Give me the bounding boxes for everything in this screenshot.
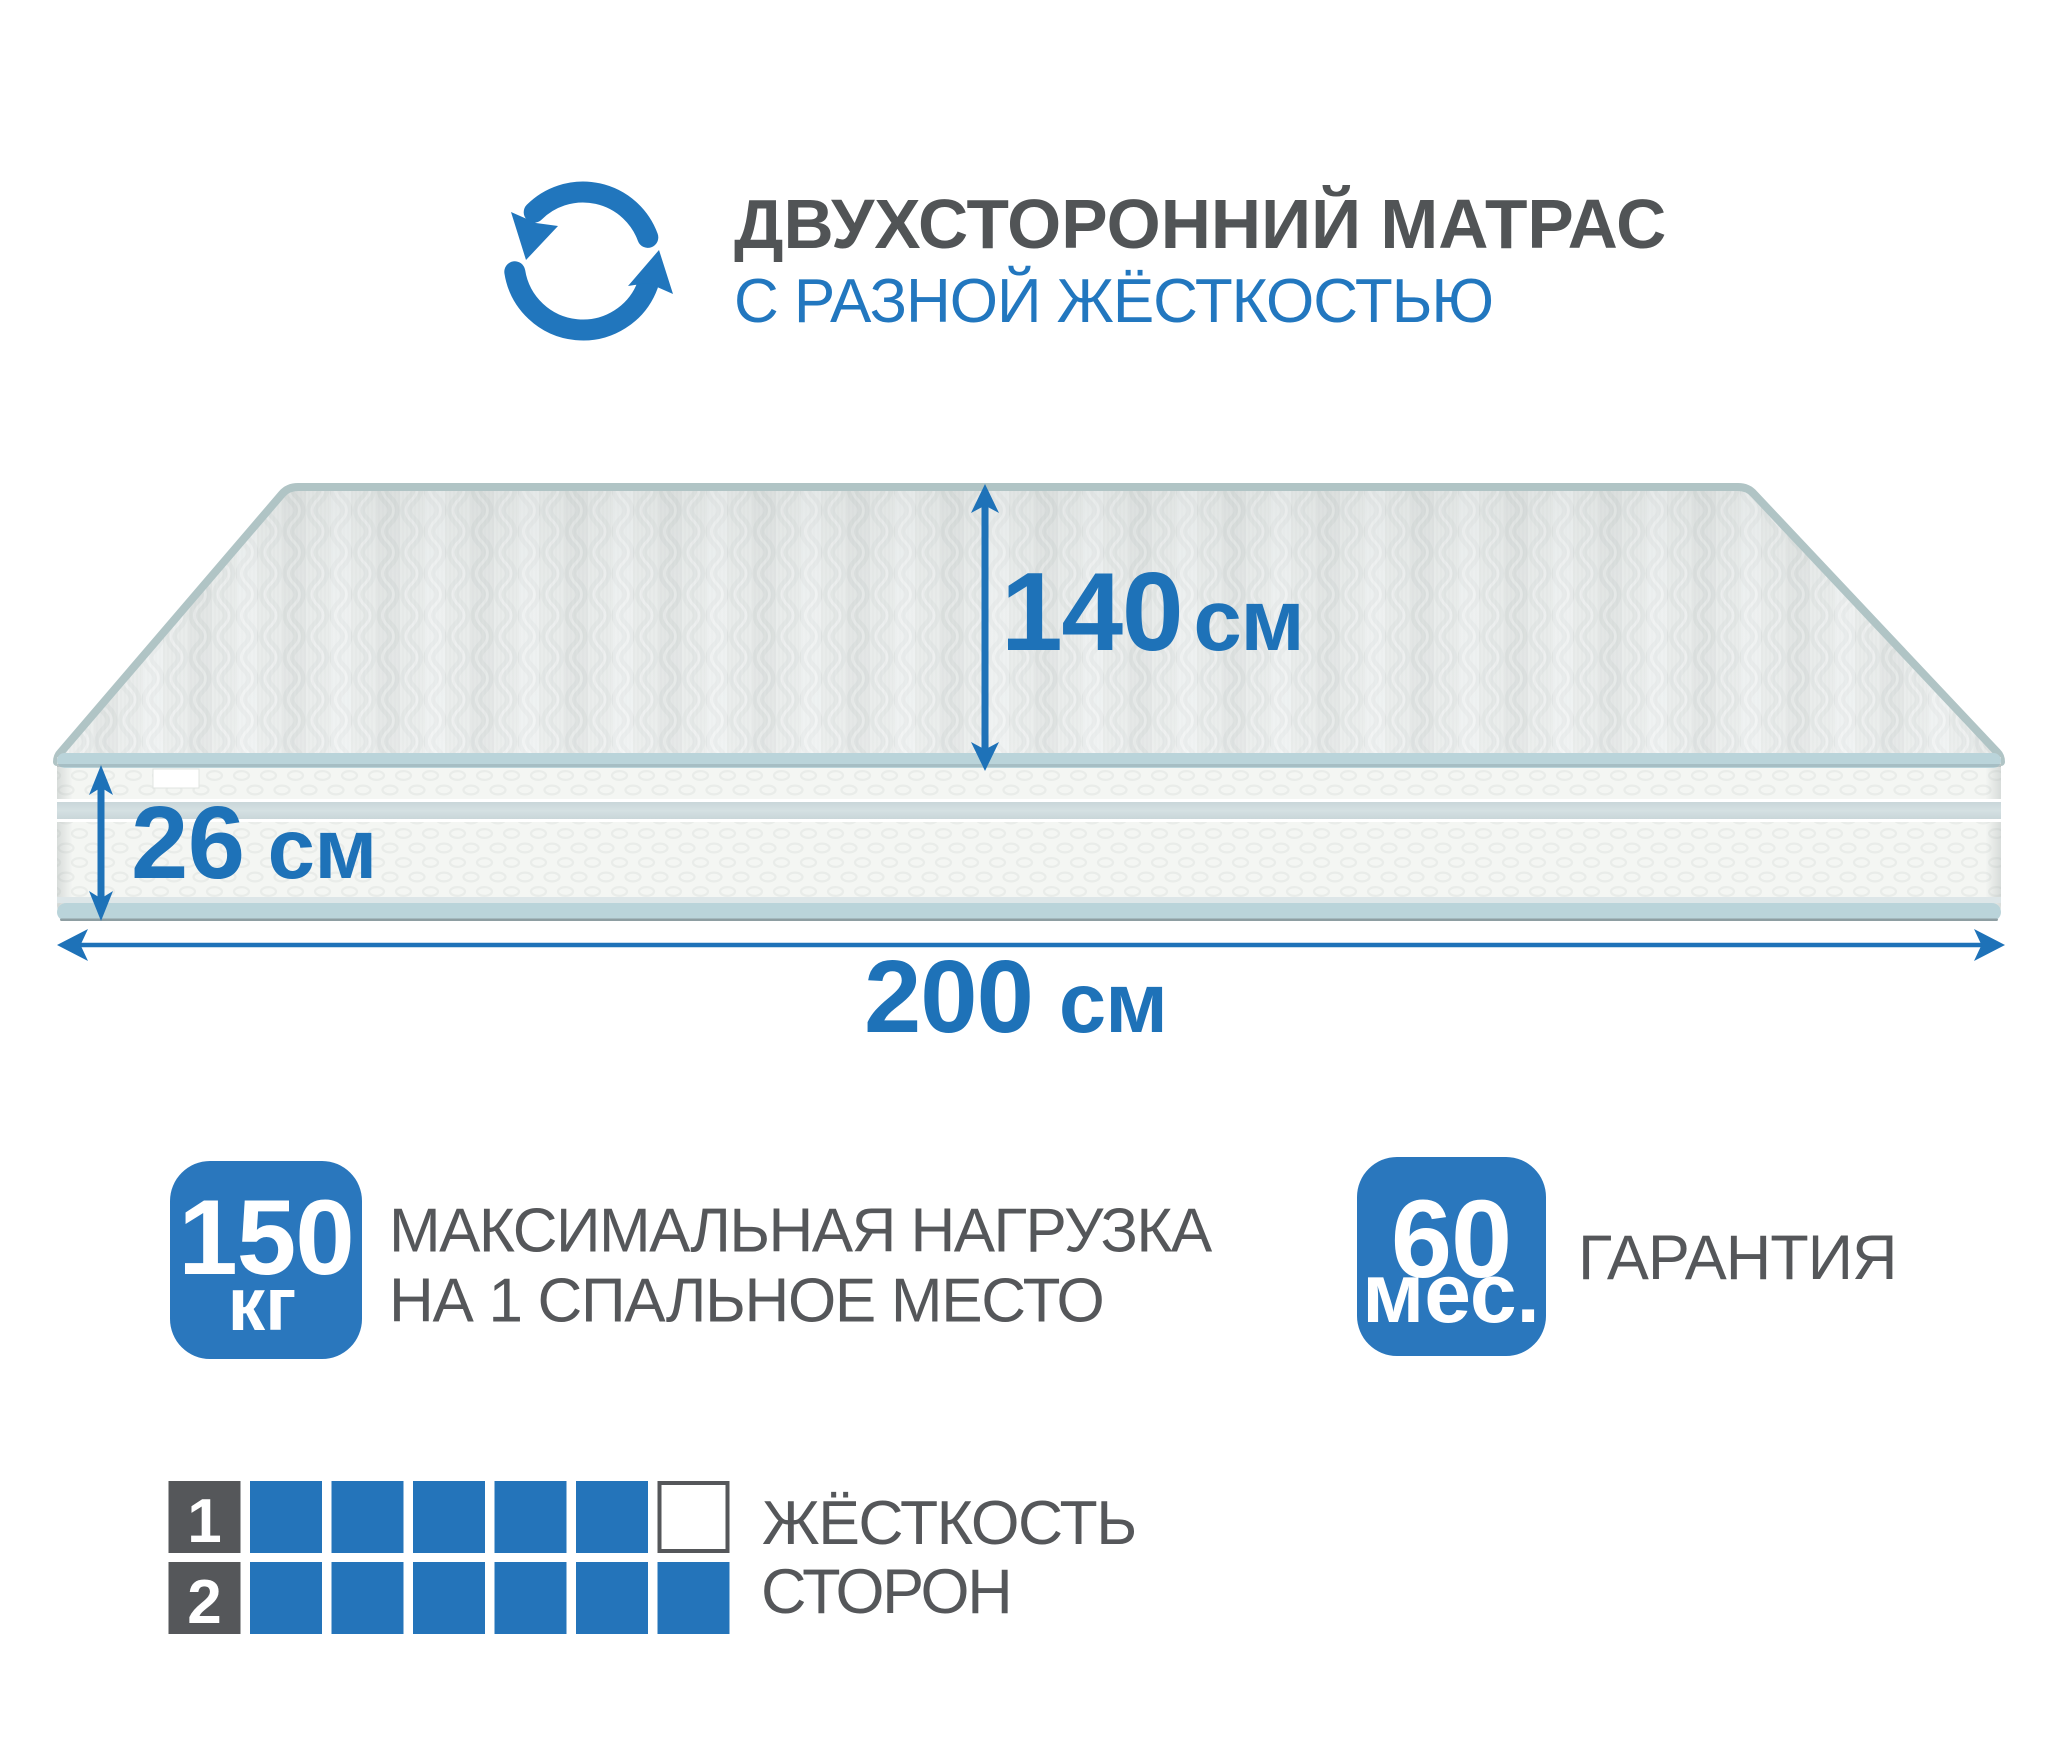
svg-text:С РАЗНОЙ ЖЁСТКОСТЬЮ: С РАЗНОЙ ЖЁСТКОСТЬЮ [734, 266, 1493, 336]
svg-text:ДВУХСТОРОННИЙ МАТРАС: ДВУХСТОРОННИЙ МАТРАС [734, 184, 1666, 263]
svg-text:СТОРОН: СТОРОН [761, 1557, 1010, 1627]
svg-text:ГАРАНТИЯ: ГАРАНТИЯ [1578, 1223, 1897, 1293]
svg-text:мес.: мес. [1362, 1246, 1540, 1340]
svg-text:200см: 200см [864, 939, 1167, 1054]
svg-text:ЖЁСТКОСТЬ: ЖЁСТКОСТЬ [762, 1488, 1136, 1558]
svg-text:2: 2 [187, 1568, 221, 1637]
svg-text:МАКСИМАЛЬНАЯ НАГРУЗКА: МАКСИМАЛЬНАЯ НАГРУЗКА [389, 1197, 1213, 1266]
svg-text:НА 1 СПАЛЬНОЕ МЕСТО: НА 1 СПАЛЬНОЕ МЕСТО [389, 1267, 1103, 1336]
svg-text:1: 1 [187, 1487, 221, 1556]
svg-text:кг: кг [228, 1262, 297, 1346]
